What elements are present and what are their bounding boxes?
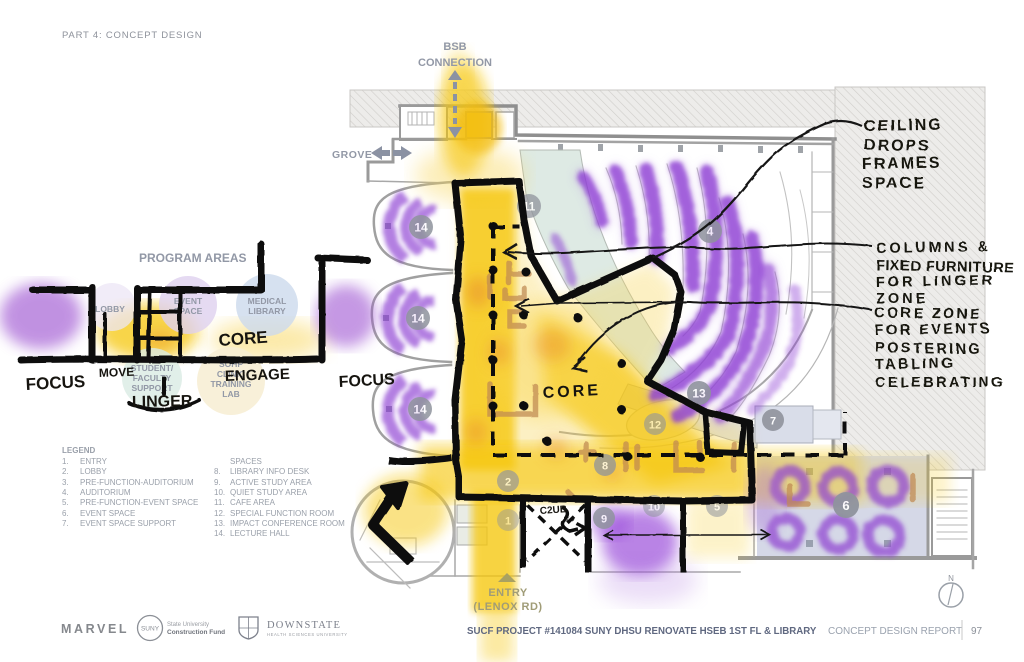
svg-text:FRAMES: FRAMES xyxy=(862,155,942,173)
svg-text:CAFE AREA: CAFE AREA xyxy=(230,498,276,507)
svg-text:9.: 9. xyxy=(214,478,221,487)
svg-text:FOCUS: FOCUS xyxy=(338,371,395,391)
svg-text:COLUMNS &: COLUMNS & xyxy=(876,239,991,257)
svg-text:13: 13 xyxy=(692,387,706,401)
svg-text:CORE ZONE: CORE ZONE xyxy=(874,305,982,323)
svg-text:LINGER: LINGER xyxy=(132,393,193,411)
svg-text:(LENOX RD): (LENOX RD) xyxy=(473,601,542,613)
svg-text:LIBRARY: LIBRARY xyxy=(248,306,286,316)
svg-text:14: 14 xyxy=(411,312,425,326)
svg-text:PRE-FUNCTION-AUDITORIUM: PRE-FUNCTION-AUDITORIUM xyxy=(80,478,194,487)
svg-text:LOBBY: LOBBY xyxy=(95,304,125,314)
svg-text:ENTRY: ENTRY xyxy=(80,457,108,466)
svg-text:N: N xyxy=(948,574,954,583)
svg-text:MEDICAL: MEDICAL xyxy=(248,296,287,306)
svg-text:AUDITORIUM: AUDITORIUM xyxy=(80,488,131,497)
svg-text:PART 4: CONCEPT DESIGN: PART 4: CONCEPT DESIGN xyxy=(62,30,202,41)
svg-text:7.: 7. xyxy=(62,519,69,528)
svg-text:LIBRARY INFO DESK: LIBRARY INFO DESK xyxy=(230,467,310,476)
svg-text:CORE: CORE xyxy=(542,382,601,402)
svg-text:14.: 14. xyxy=(214,529,225,538)
svg-text:3.: 3. xyxy=(62,478,69,487)
svg-text:SUNY: SUNY xyxy=(141,626,160,633)
svg-text:SUPPORT: SUPPORT xyxy=(131,383,173,393)
svg-text:DROPS: DROPS xyxy=(864,137,931,155)
svg-text:EVENT SPACE SUPPORT: EVENT SPACE SUPPORT xyxy=(80,519,176,528)
svg-text:MARVEL: MARVEL xyxy=(61,622,129,636)
svg-text:EVENT SPACE: EVENT SPACE xyxy=(80,509,135,518)
svg-text:5.: 5. xyxy=(62,498,69,507)
svg-text:8.: 8. xyxy=(214,467,221,476)
svg-text:LEGEND: LEGEND xyxy=(62,446,96,455)
svg-text:PROGRAM AREAS: PROGRAM AREAS xyxy=(139,251,247,265)
svg-text:CELEBRATING: CELEBRATING xyxy=(875,375,1005,391)
svg-text:SPECIAL FUNCTION ROOM: SPECIAL FUNCTION ROOM xyxy=(230,509,334,518)
svg-text:LECTURE HALL: LECTURE HALL xyxy=(230,529,290,538)
svg-text:CORE: CORE xyxy=(218,328,268,350)
svg-text:STUDENT/: STUDENT/ xyxy=(131,363,174,373)
svg-text:FOR EVENTS: FOR EVENTS xyxy=(875,321,992,339)
svg-text:C2UB: C2UB xyxy=(539,504,567,517)
svg-text:HEALTH SCIENCES UNIVERSITY: HEALTH SCIENCES UNIVERSITY xyxy=(267,632,348,637)
svg-text:1: 1 xyxy=(505,516,511,528)
svg-text:11.: 11. xyxy=(214,498,225,507)
svg-text:10.: 10. xyxy=(214,488,225,497)
svg-text:FOCUS: FOCUS xyxy=(25,372,85,394)
svg-text:4.: 4. xyxy=(62,488,69,497)
svg-text:14: 14 xyxy=(413,403,427,417)
svg-text:8: 8 xyxy=(602,461,608,473)
svg-text:14: 14 xyxy=(414,221,428,235)
svg-text:2: 2 xyxy=(505,477,511,489)
svg-text:ENTRY: ENTRY xyxy=(488,587,528,599)
svg-text:FOR LINGER: FOR LINGER xyxy=(876,273,996,291)
svg-text:6: 6 xyxy=(842,498,849,513)
svg-text:State University: State University xyxy=(167,622,209,628)
svg-text:CONNECTION: CONNECTION xyxy=(418,57,492,69)
svg-text:13.: 13. xyxy=(214,519,225,528)
svg-text:ENGAGE: ENGAGE xyxy=(225,366,291,385)
svg-text:LAB: LAB xyxy=(222,389,239,399)
svg-text:GROVE: GROVE xyxy=(332,149,372,161)
svg-text:CEILING: CEILING xyxy=(864,117,943,135)
svg-text:SUCF PROJECT #141084 SUNY DHSU: SUCF PROJECT #141084 SUNY DHSU RENOVATE … xyxy=(467,626,817,637)
svg-text:7: 7 xyxy=(770,416,776,428)
svg-text:QUIET STUDY AREA: QUIET STUDY AREA xyxy=(230,488,308,497)
svg-text:DOWNSTATE: DOWNSTATE xyxy=(267,620,341,631)
svg-text:ACTIVE STUDY AREA: ACTIVE STUDY AREA xyxy=(230,478,312,487)
svg-text:CONCEPT DESIGN REPORT: CONCEPT DESIGN REPORT xyxy=(828,626,962,637)
svg-text:12: 12 xyxy=(649,420,661,432)
svg-text:Construction Fund: Construction Fund xyxy=(167,629,225,636)
svg-text:BSB: BSB xyxy=(443,41,466,53)
svg-text:LOBBY: LOBBY xyxy=(80,467,107,476)
svg-text:IMPACT CONFERENCE ROOM: IMPACT CONFERENCE ROOM xyxy=(230,519,345,528)
svg-text:2.: 2. xyxy=(62,467,69,476)
svg-text:PRE-FUNCTION-EVENT SPACE: PRE-FUNCTION-EVENT SPACE xyxy=(80,498,198,507)
svg-text:1.: 1. xyxy=(62,457,69,466)
svg-text:6.: 6. xyxy=(62,509,69,518)
svg-text:MOVE: MOVE xyxy=(99,365,135,380)
svg-text:SPACE: SPACE xyxy=(862,175,926,192)
svg-text:12.: 12. xyxy=(214,509,225,518)
svg-text:TABLING: TABLING xyxy=(875,356,955,373)
svg-text:SPACES: SPACES xyxy=(230,457,262,466)
svg-text:97: 97 xyxy=(971,626,983,637)
svg-text:9: 9 xyxy=(601,514,607,526)
